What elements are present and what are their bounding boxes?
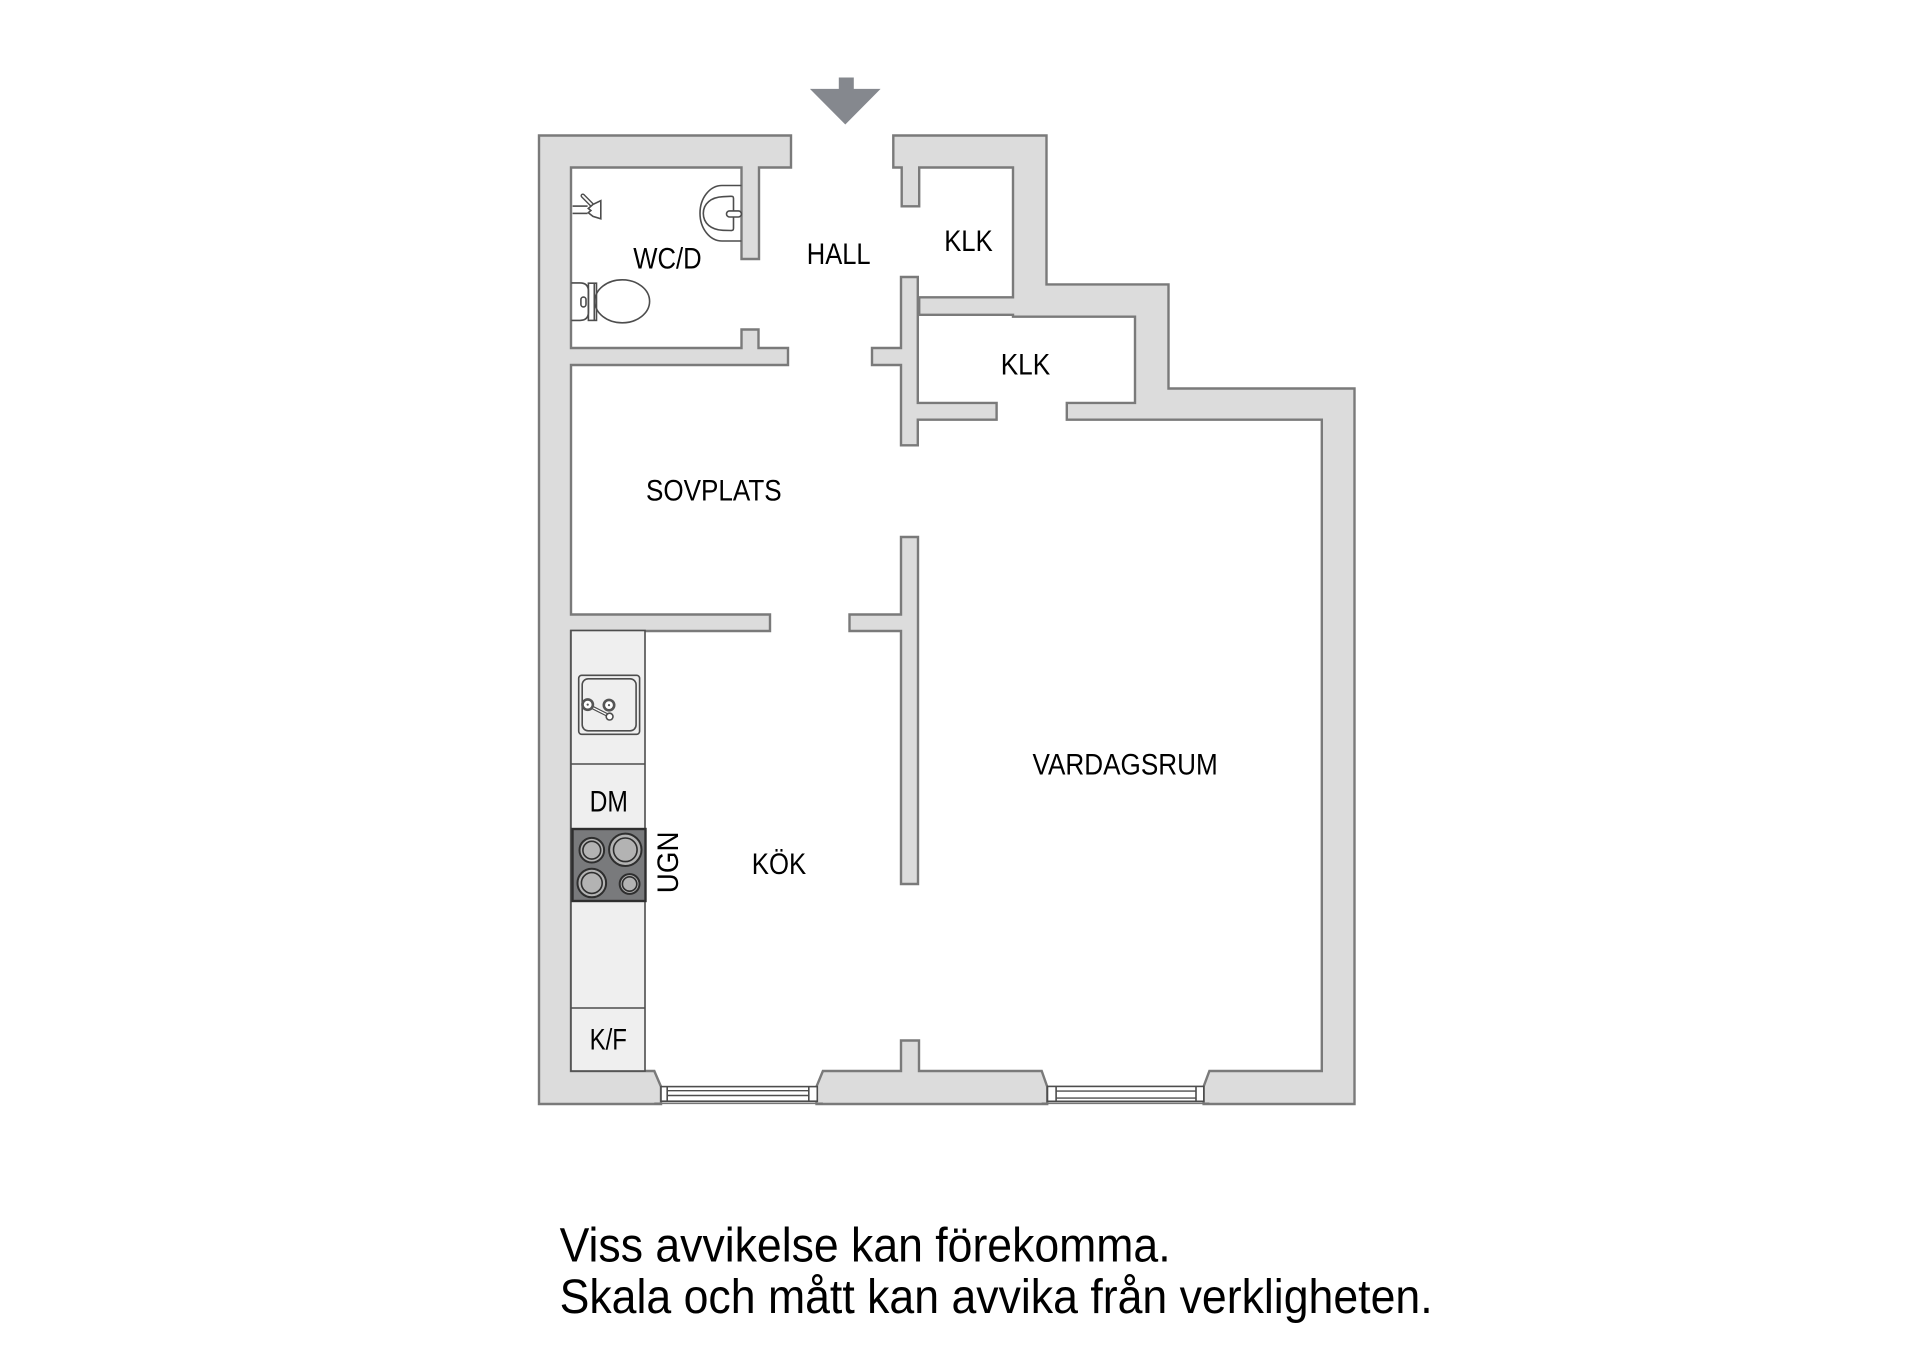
svg-text:KLK: KLK bbox=[1001, 349, 1050, 382]
svg-text:Skala och mått kan avvika från: Skala och mått kan avvika från verklighe… bbox=[560, 1271, 1433, 1324]
svg-text:KÖK: KÖK bbox=[752, 848, 806, 881]
svg-text:DM: DM bbox=[590, 785, 628, 818]
svg-text:KLK: KLK bbox=[944, 225, 993, 258]
svg-text:Viss avvikelse kan förekomma.: Viss avvikelse kan förekomma. bbox=[560, 1220, 1171, 1273]
svg-text:VARDAGSRUM: VARDAGSRUM bbox=[1033, 748, 1218, 781]
svg-text:HALL: HALL bbox=[807, 238, 871, 271]
svg-text:K/F: K/F bbox=[590, 1023, 627, 1056]
svg-text:WC/D: WC/D bbox=[633, 242, 701, 275]
svg-text:UGN: UGN bbox=[652, 831, 685, 893]
svg-text:SOVPLATS: SOVPLATS bbox=[646, 474, 782, 507]
